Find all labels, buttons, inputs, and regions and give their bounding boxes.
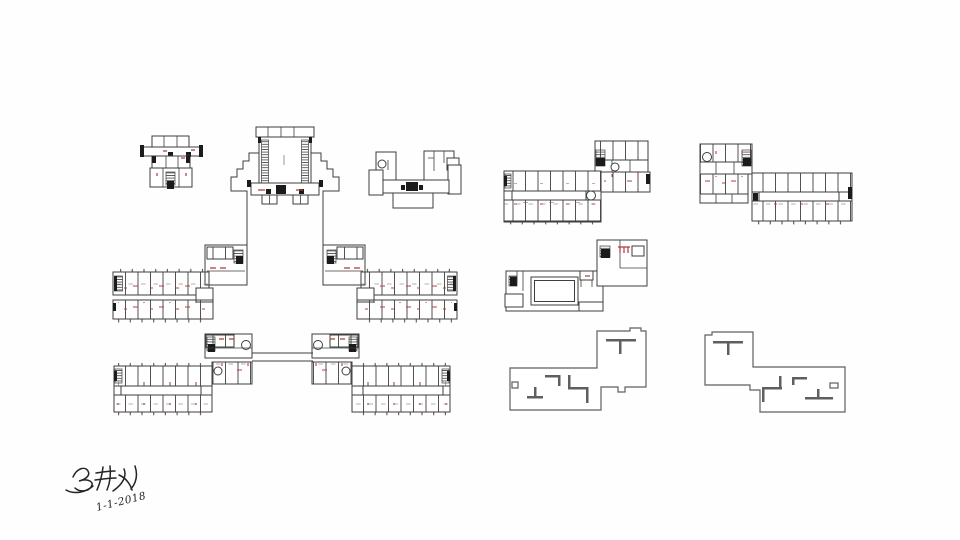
plan-right-top-b — [700, 144, 852, 223]
drawing-sheet: 1-1-2018 — [0, 0, 960, 540]
plan-right-mid-hall — [505, 240, 647, 311]
plan-right-top-a — [504, 141, 650, 223]
plan-bottom-left-wings — [114, 334, 450, 414]
plan-roof-outline-a — [510, 328, 646, 410]
plan-top-u-shaped — [369, 151, 461, 208]
signature — [66, 466, 136, 493]
floor-plan-sheet: 1-1-2018 — [0, 0, 960, 540]
plan-top-left-pavilion — [140, 136, 203, 189]
signature-date: 1-1-2018 — [95, 490, 148, 514]
plan-roof-outline-b — [705, 332, 845, 412]
